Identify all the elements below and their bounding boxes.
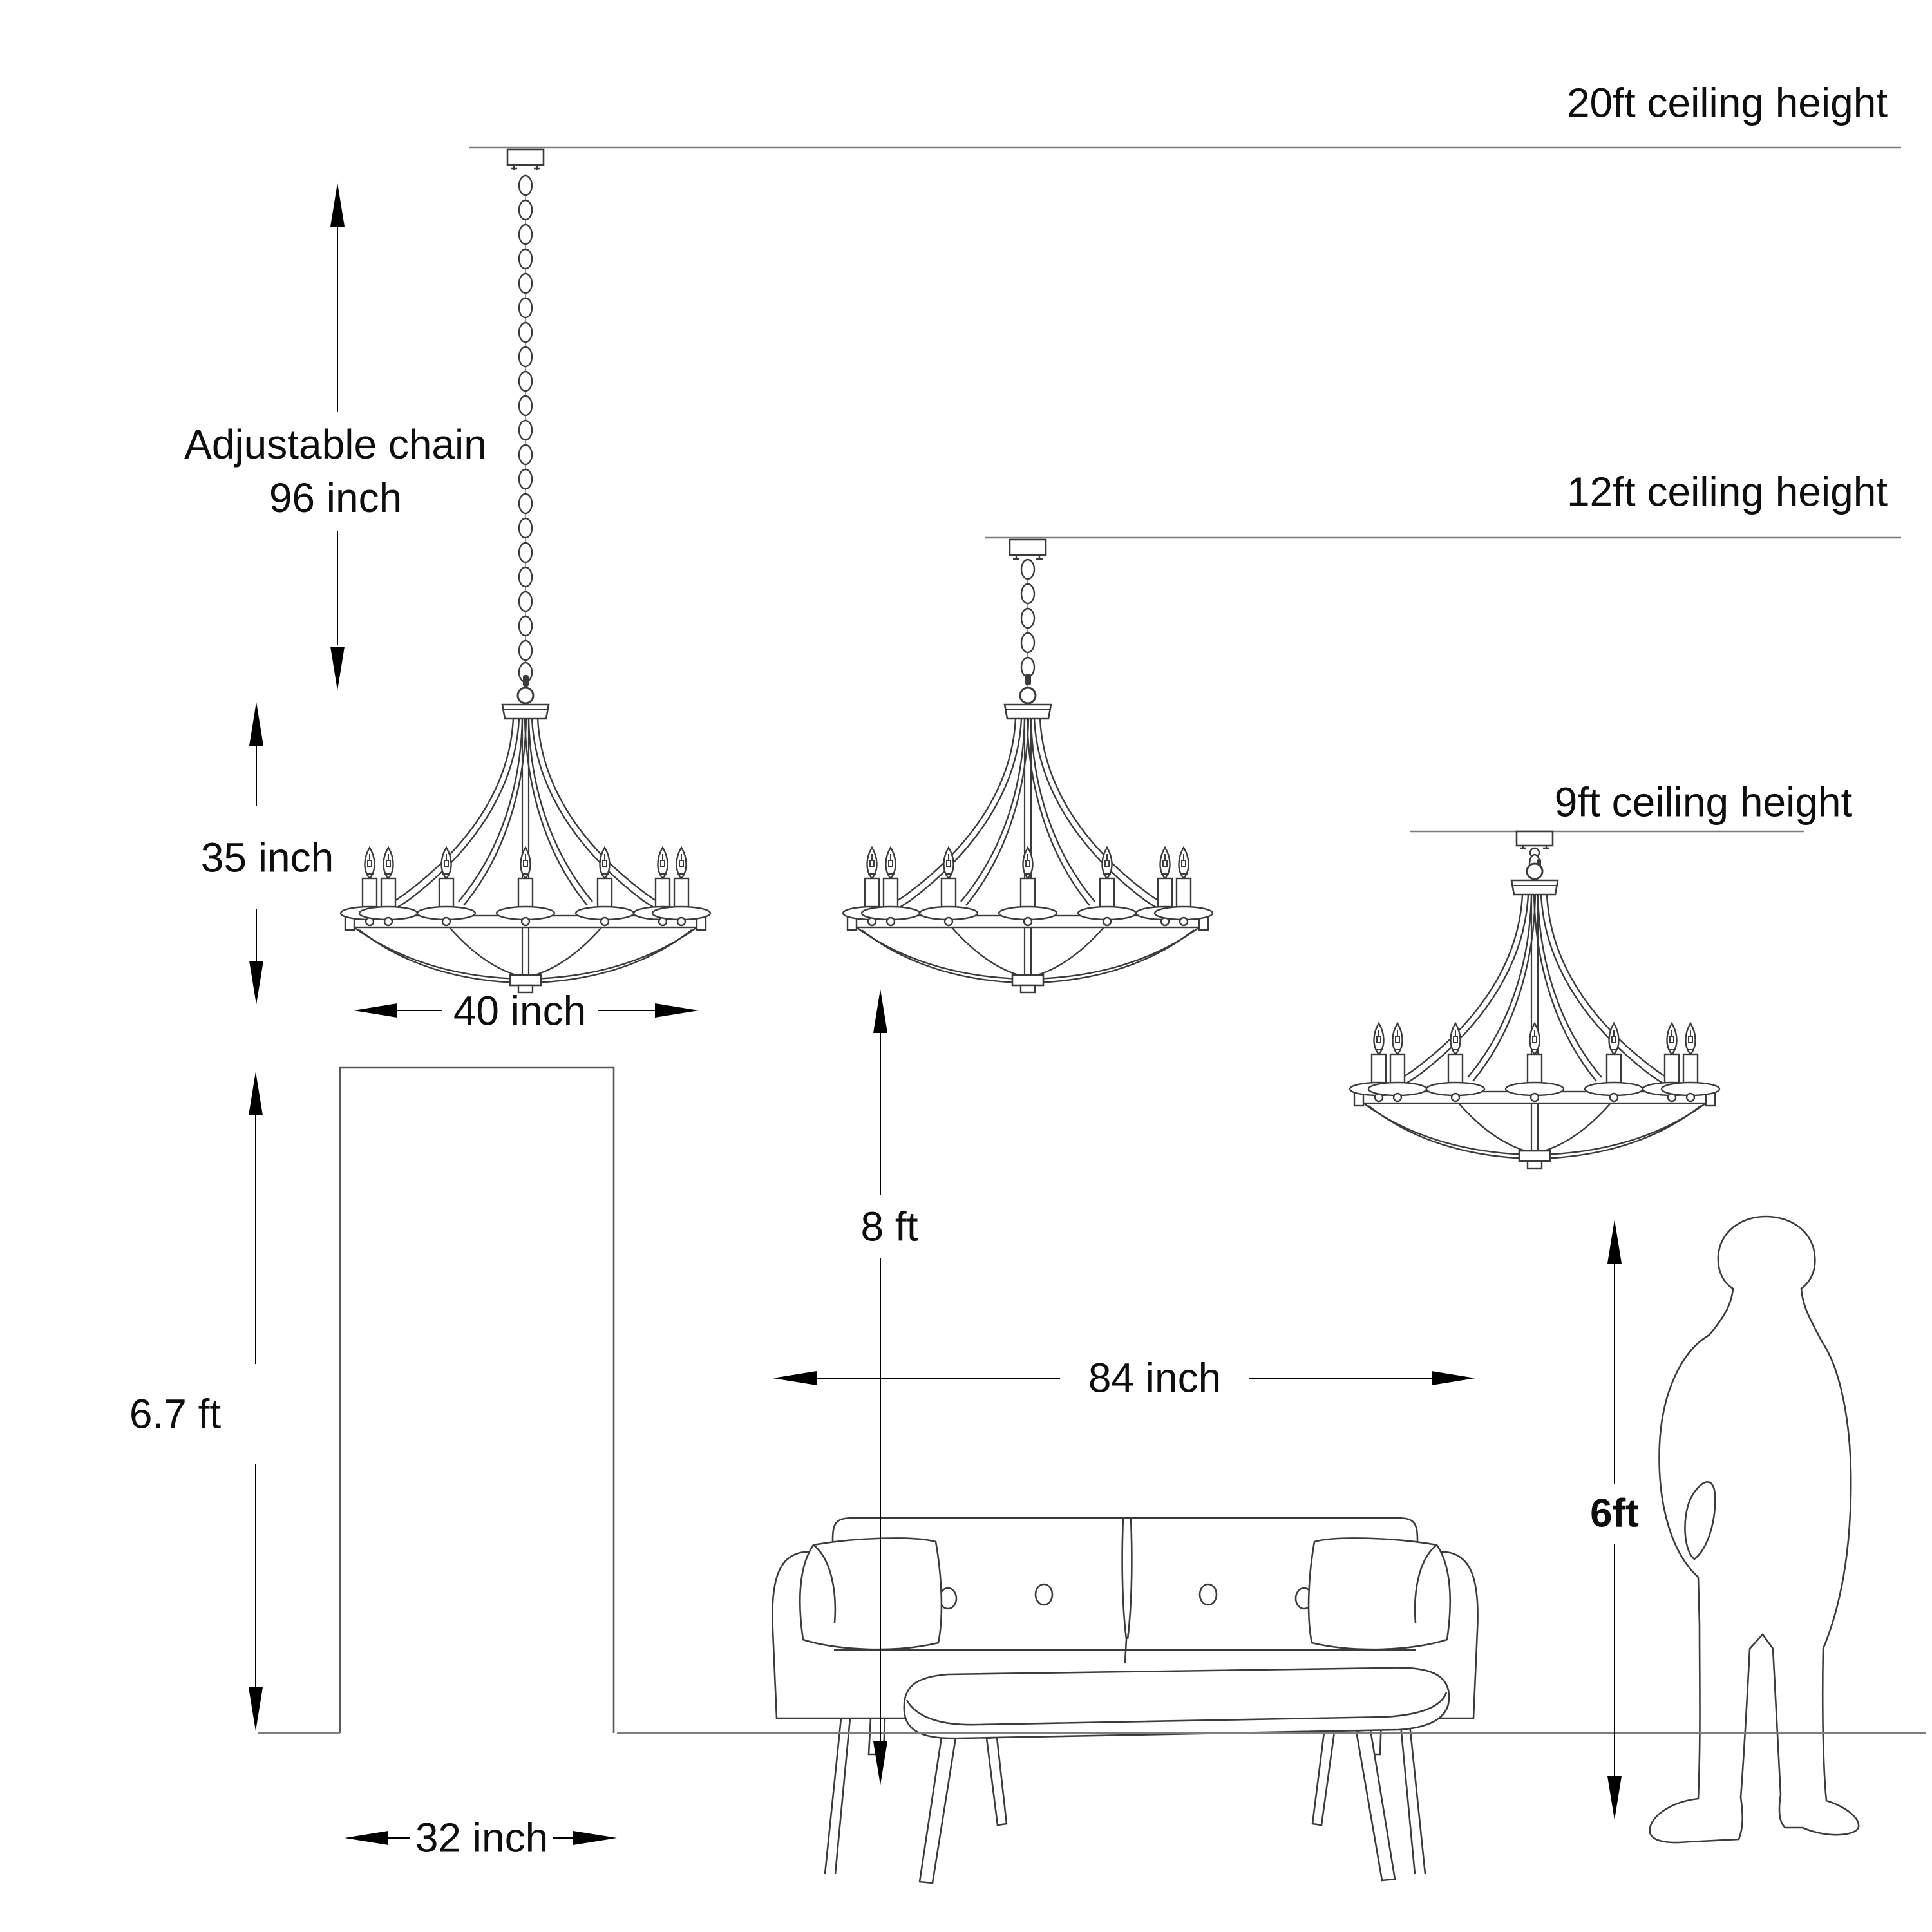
chandelier-20ft [341,149,710,992]
label-person-height: 6ft [1590,1488,1639,1540]
label-floor-to-fixture: 8 ft [861,1200,918,1253]
label-adjustable-chain-line2: 96 inch [184,471,487,525]
sofa-pillow-right [1309,1538,1450,1649]
label-door-height: 6.7 ft [129,1387,221,1441]
chain-96in [519,176,532,682]
door-outline [340,1068,614,1733]
chain-short [1021,560,1034,677]
label-ceiling-20ft: 20ft ceiling height [1567,76,1888,129]
coffee-table [904,1668,1449,1883]
chandelier-9ft [1350,831,1719,1168]
label-ceiling-12ft: 12ft ceiling height [1567,465,1888,518]
label-sofa-width: 84 inch [1088,1351,1221,1405]
sofa-pillow-left [800,1538,942,1649]
person-silhouette [1650,1217,1859,1842]
diagram-line-art [0,0,1932,1932]
label-door-width: 32 inch [415,1811,548,1864]
door-height-dimension [249,1072,263,1731]
chandelier-dimension-diagram: 20ft ceiling height 12ft ceiling height … [0,0,1932,1932]
label-adjustable-chain-line1: Adjustable chain [184,418,487,471]
label-fixture-width: 40 inch [453,984,586,1037]
label-adjustable-chain: Adjustable chain 96 inch [184,418,487,525]
label-fixture-height: 35 inch [201,831,334,884]
chandelier-12ft [843,540,1213,992]
label-ceiling-9ft: 9ft ceiling height [1555,775,1853,829]
